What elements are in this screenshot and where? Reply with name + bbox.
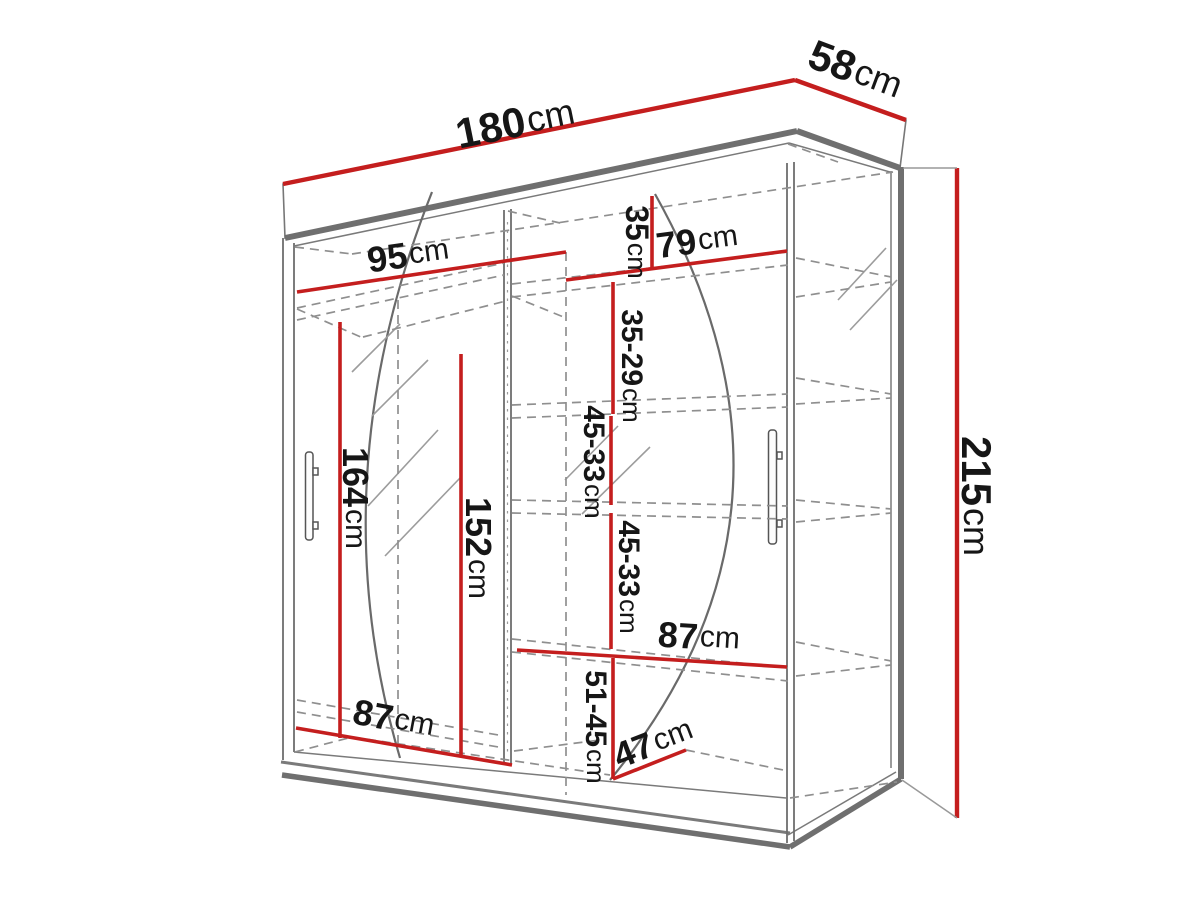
- top-shelf-spacing-label: 35cm: [619, 205, 655, 279]
- mirror-hatch-line: [352, 324, 400, 372]
- middle-shelf-width-line: [517, 650, 787, 667]
- mirror-hatch-line: [385, 478, 460, 556]
- left-door-handle: [306, 452, 319, 540]
- diagram-canvas: 180cm 58cm 215cm 95cm 79cm 35cm 35-29cm …: [0, 0, 1200, 900]
- shelf-side-edge: [796, 398, 891, 404]
- depth-edge: [295, 247, 352, 254]
- shelf-depth-edge: [512, 296, 566, 318]
- hanging-height-label: 164cm: [336, 447, 377, 549]
- depth-edge: [508, 211, 560, 223]
- inner-height-label: 152cm: [459, 497, 500, 599]
- shelf-side-edge: [796, 513, 891, 522]
- bottom-shelf-spacing-label: 51-45cm: [580, 670, 613, 783]
- shelf-edge: [512, 513, 788, 519]
- handle-mount: [313, 522, 318, 529]
- floor-depth-edge: [686, 750, 788, 771]
- plinth-bottom-edge: [282, 775, 790, 847]
- handle-mount: [777, 452, 782, 459]
- handle-mount: [313, 468, 318, 475]
- right-door-handle: [769, 430, 783, 544]
- side-bottom-inner-edge: [788, 772, 896, 835]
- wardrobe-dimension-diagram: 180cm 58cm 215cm 95cm 79cm 35cm 35-29cm …: [0, 0, 1200, 900]
- handle-bar: [769, 430, 777, 544]
- side-bottom-edge: [790, 779, 901, 847]
- overall-height-label: 215cm: [954, 436, 1001, 556]
- depth-edge: [788, 144, 838, 162]
- floor-depth-edge: [295, 737, 352, 752]
- mirror-hatch-line: [368, 430, 438, 506]
- right-door-arc: [610, 194, 734, 780]
- mirror-hatch-line: [838, 248, 886, 300]
- third-shelf-spacing-label: 45-33cm: [578, 405, 611, 518]
- handle-mount: [777, 520, 782, 527]
- shelf-back-edge: [363, 301, 506, 337]
- shelf-side-edge: [796, 378, 891, 394]
- handle-bar: [306, 452, 314, 540]
- shelf-edge: [512, 394, 788, 405]
- shelf-edge: [512, 652, 788, 681]
- fourth-shelf-spacing-label: 45-33cm: [613, 520, 646, 633]
- shelf-edge: [512, 407, 788, 418]
- top-panel-face: [283, 80, 906, 238]
- shelf-side-edge: [796, 258, 891, 277]
- bottom-depth-label: 47cm: [607, 708, 698, 776]
- shelf-edge: [512, 500, 788, 506]
- second-shelf-spacing-label: 35-29cm: [616, 309, 649, 422]
- shelf-side-edge: [796, 665, 891, 676]
- wardrobe-top-panel: [283, 80, 906, 238]
- height-bracket-bottom: [902, 780, 957, 818]
- shelf-side-edge: [796, 500, 891, 509]
- plinth-top-edge: [281, 762, 790, 833]
- shelf-side-edge: [796, 642, 891, 661]
